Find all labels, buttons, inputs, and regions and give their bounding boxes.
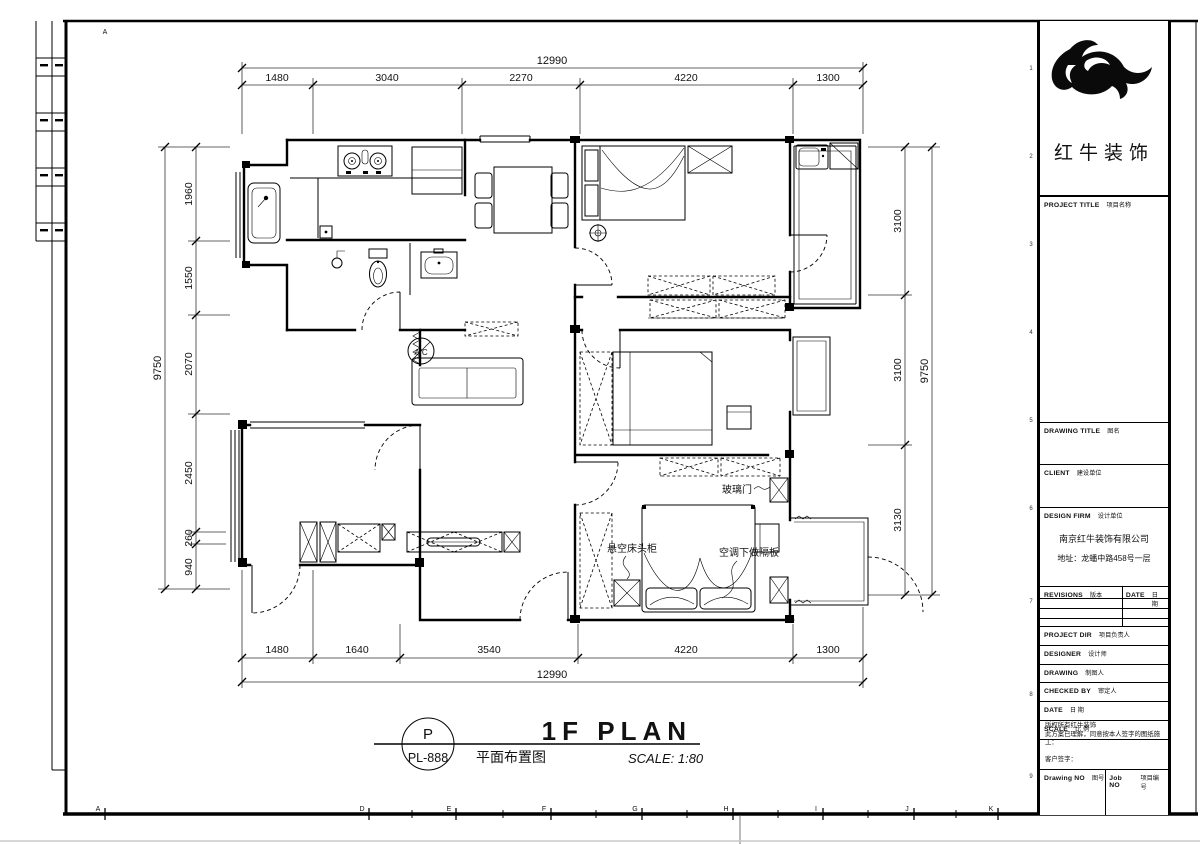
glass-door-label: 玻璃门 xyxy=(722,483,752,496)
svg-text:1960: 1960 xyxy=(183,182,195,206)
svg-text:7: 7 xyxy=(1029,599,1033,605)
bedroom-3 xyxy=(580,458,788,612)
svg-text:1480: 1480 xyxy=(265,644,289,656)
checked-by-label-cn: 审定人 xyxy=(1098,686,1117,695)
drawing-title-label-cn: 图名 xyxy=(1107,426,1119,435)
washing-machine xyxy=(796,145,828,169)
floor-plan: A/C 玻璃门 悬空床头柜 xyxy=(231,136,923,623)
drawing-title-label-en: DRAWING TITLE xyxy=(1044,428,1100,435)
dimension-chain-left: 9750 1960 1550 2070 2450 260 940 xyxy=(152,143,230,593)
bedroom-1 xyxy=(582,146,785,318)
study-room xyxy=(300,522,395,562)
drawing-by-label-cn: 制图人 xyxy=(1085,668,1104,677)
svg-text:D: D xyxy=(359,806,364,813)
dim-left-overall: 9750 xyxy=(152,356,164,380)
ac-shelf-label: 空调下做隔板 xyxy=(719,546,779,559)
svg-text:J: J xyxy=(905,806,909,813)
svg-text:940: 940 xyxy=(183,558,195,576)
svg-text:I: I xyxy=(815,806,817,813)
svg-text:2: 2 xyxy=(1029,154,1033,160)
title-block: 红牛装饰 PROJECT TITLE 项目名称 DRAWING TITLE 图名… xyxy=(1037,21,1171,815)
sofa xyxy=(412,358,523,405)
project-dir-label-cn: 项目负责人 xyxy=(1099,630,1130,639)
project-title-label-en: PROJECT TITLE xyxy=(1044,202,1099,209)
brand-logo-icon xyxy=(1040,35,1168,130)
svg-text:3540: 3540 xyxy=(477,644,501,656)
svg-text:2270: 2270 xyxy=(509,72,533,84)
svg-text:3040: 3040 xyxy=(375,72,399,84)
staff-rows: PROJECT DIR 项目负责人 DESIGNER 设计师 DRAWING 制… xyxy=(1040,627,1168,716)
design-firm-section: DESIGN FIRM 设计单位 南京红牛装饰有限公司 地址：龙蟠中路458号一… xyxy=(1040,508,1168,587)
note-line-3: 客户签字： xyxy=(1040,756,1168,765)
binding-strip xyxy=(36,21,66,770)
company-address: 地址：龙蟠中路458号一层 xyxy=(1040,553,1168,564)
svg-text:1300: 1300 xyxy=(816,644,840,656)
logo-section: 红牛装饰 xyxy=(1040,21,1168,197)
note-line-2: 此方案已理解，同意按本人签字的图纸施工： xyxy=(1040,731,1168,748)
balcony-top xyxy=(796,143,858,169)
kitchen xyxy=(248,146,462,243)
client-section: CLIENT 建设单位 xyxy=(1040,465,1168,508)
tv-cabinet xyxy=(407,532,502,552)
dimension-chain-top: 12990 1480 3040 2270 4220 1300 xyxy=(238,55,867,134)
dimension-chain-bottom: 1480 1640 3540 4220 1300 12990 xyxy=(238,570,867,688)
svg-text:3: 3 xyxy=(1029,242,1033,248)
drawing-no-label-cn: 图号 xyxy=(1092,773,1104,782)
svg-text:1480: 1480 xyxy=(265,72,289,84)
number-section: Drawing NO 图号 Job NO 项目编号 xyxy=(1040,770,1168,815)
svg-text:5: 5 xyxy=(1029,418,1033,424)
designer-label-cn: 设计师 xyxy=(1088,649,1107,658)
bathroom xyxy=(332,249,457,287)
checked-by-label-en: CHECKED BY xyxy=(1044,688,1091,695)
svg-text:G: G xyxy=(632,806,637,813)
living-room: A/C xyxy=(407,322,523,552)
svg-text:A: A xyxy=(96,806,101,813)
svg-text:9: 9 xyxy=(1029,774,1033,780)
revisions-table: REVISIONS 版本 DATE 日期 xyxy=(1040,587,1168,627)
plan-title-en: 1F PLAN xyxy=(542,716,692,746)
job-no-label-en: Job NO xyxy=(1109,775,1133,789)
job-no-label-cn: 项目编号 xyxy=(1140,773,1164,791)
toilet xyxy=(369,249,387,287)
stove xyxy=(338,146,392,176)
note-line-1: 版权所有红牛装饰 xyxy=(1040,722,1168,731)
plan-title-cn: 平面布置图 xyxy=(476,749,546,765)
svg-text:E: E xyxy=(447,806,452,813)
sheet-letter: P xyxy=(423,726,433,743)
border-letter-top: A xyxy=(103,29,108,36)
svg-text:1300: 1300 xyxy=(816,72,840,84)
sheet-number: PL-888 xyxy=(408,751,448,765)
svg-text:2450: 2450 xyxy=(183,461,195,485)
svg-text:1: 1 xyxy=(1029,66,1033,72)
svg-text:3100: 3100 xyxy=(892,209,904,233)
closet-dashed xyxy=(648,276,775,295)
svg-text:4220: 4220 xyxy=(674,72,698,84)
project-title-section: PROJECT TITLE 项目名称 xyxy=(1040,197,1168,423)
svg-text:H: H xyxy=(723,806,728,813)
drawing-title-section: DRAWING TITLE 图名 xyxy=(1040,423,1168,465)
dimension-chain-right: 3100 3100 3130 9750 xyxy=(868,143,940,599)
brand-name: 红牛装饰 xyxy=(1040,138,1168,165)
closet-dashed-2 xyxy=(650,300,785,318)
date-label-en: DATE xyxy=(1044,707,1063,714)
design-firm-label-en: DESIGN FIRM xyxy=(1044,513,1091,520)
dining-area xyxy=(475,167,568,233)
svg-text:4220: 4220 xyxy=(674,644,698,656)
svg-text:1640: 1640 xyxy=(345,644,369,656)
date-label-cn: 日 期 xyxy=(1070,705,1084,714)
windows xyxy=(231,136,868,605)
client-label-en: CLIENT xyxy=(1044,470,1070,477)
svg-text:F: F xyxy=(542,806,546,813)
notes-section: 版权所有红牛装饰 此方案已理解，同意按本人签字的图纸施工： 客户签字： xyxy=(1040,716,1168,770)
bedroom-2 xyxy=(580,352,751,445)
drawing-no-label-en: Drawing NO xyxy=(1044,775,1085,782)
washbasin xyxy=(421,249,457,278)
svg-text:1550: 1550 xyxy=(183,266,195,290)
floating-nightstand-label: 悬空床头柜 xyxy=(607,542,657,555)
svg-text:3100: 3100 xyxy=(892,358,904,382)
svg-text:K: K xyxy=(989,806,994,813)
project-title-label-cn: 项目名称 xyxy=(1106,200,1131,209)
drawing-by-label-en: DRAWING xyxy=(1044,670,1078,677)
ac-symbol-label: A/C xyxy=(414,348,428,357)
company-name: 南京红牛装饰有限公司 xyxy=(1040,532,1168,545)
client-label-cn: 建设单位 xyxy=(1077,468,1102,477)
design-firm-label-cn: 设计单位 xyxy=(1098,511,1123,520)
svg-text:4: 4 xyxy=(1029,330,1033,336)
border-reference-marks: A A D E F G H I J K 1 2 3 4 5 6 7 8 9 xyxy=(96,29,1034,820)
dim-right-overall: 9750 xyxy=(919,359,931,383)
svg-text:2070: 2070 xyxy=(183,352,195,376)
svg-text:3130: 3130 xyxy=(892,508,904,532)
dim-top-overall: 12990 xyxy=(537,55,568,67)
plan-scale: SCALE: 1:80 xyxy=(628,751,704,766)
plan-annotations: 玻璃门 悬空床头柜 空调下做隔板 xyxy=(607,483,779,598)
svg-text:6: 6 xyxy=(1029,506,1033,512)
date-col-label-cn: 日期 xyxy=(1152,590,1164,608)
dim-bottom-overall: 12990 xyxy=(537,669,568,681)
closet-dashed xyxy=(660,458,780,476)
project-dir-label-en: PROJECT DIR xyxy=(1044,632,1092,639)
designer-label-en: DESIGNER xyxy=(1044,651,1081,658)
drawing-title-footer: P PL-888 1F PLAN 平面布置图 SCALE: 1:80 xyxy=(374,716,704,770)
svg-text:8: 8 xyxy=(1029,692,1033,698)
drawing-sheet: A A D E F G H I J K 1 2 3 4 5 6 7 8 9 xyxy=(0,0,1200,844)
svg-text:260: 260 xyxy=(183,529,195,547)
kitchen-sink xyxy=(248,183,280,243)
